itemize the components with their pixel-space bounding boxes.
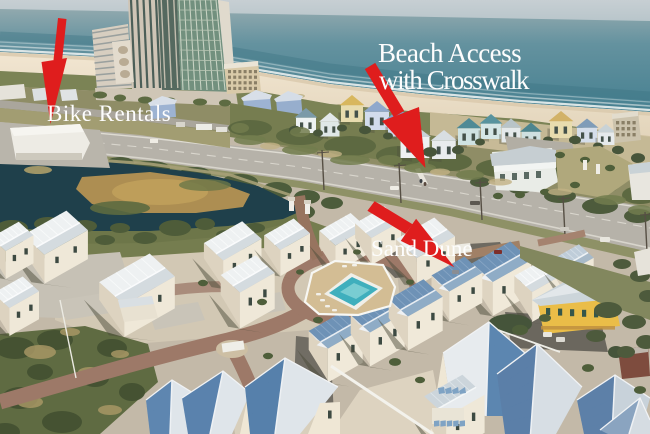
svg-text:Sand Dune: Sand Dune <box>371 236 473 261</box>
svg-text:with Crosswalk: with Crosswalk <box>379 65 530 95</box>
svg-text:Beach Access: Beach Access <box>378 38 521 68</box>
svg-text:Bike Rentals: Bike Rentals <box>47 101 171 126</box>
